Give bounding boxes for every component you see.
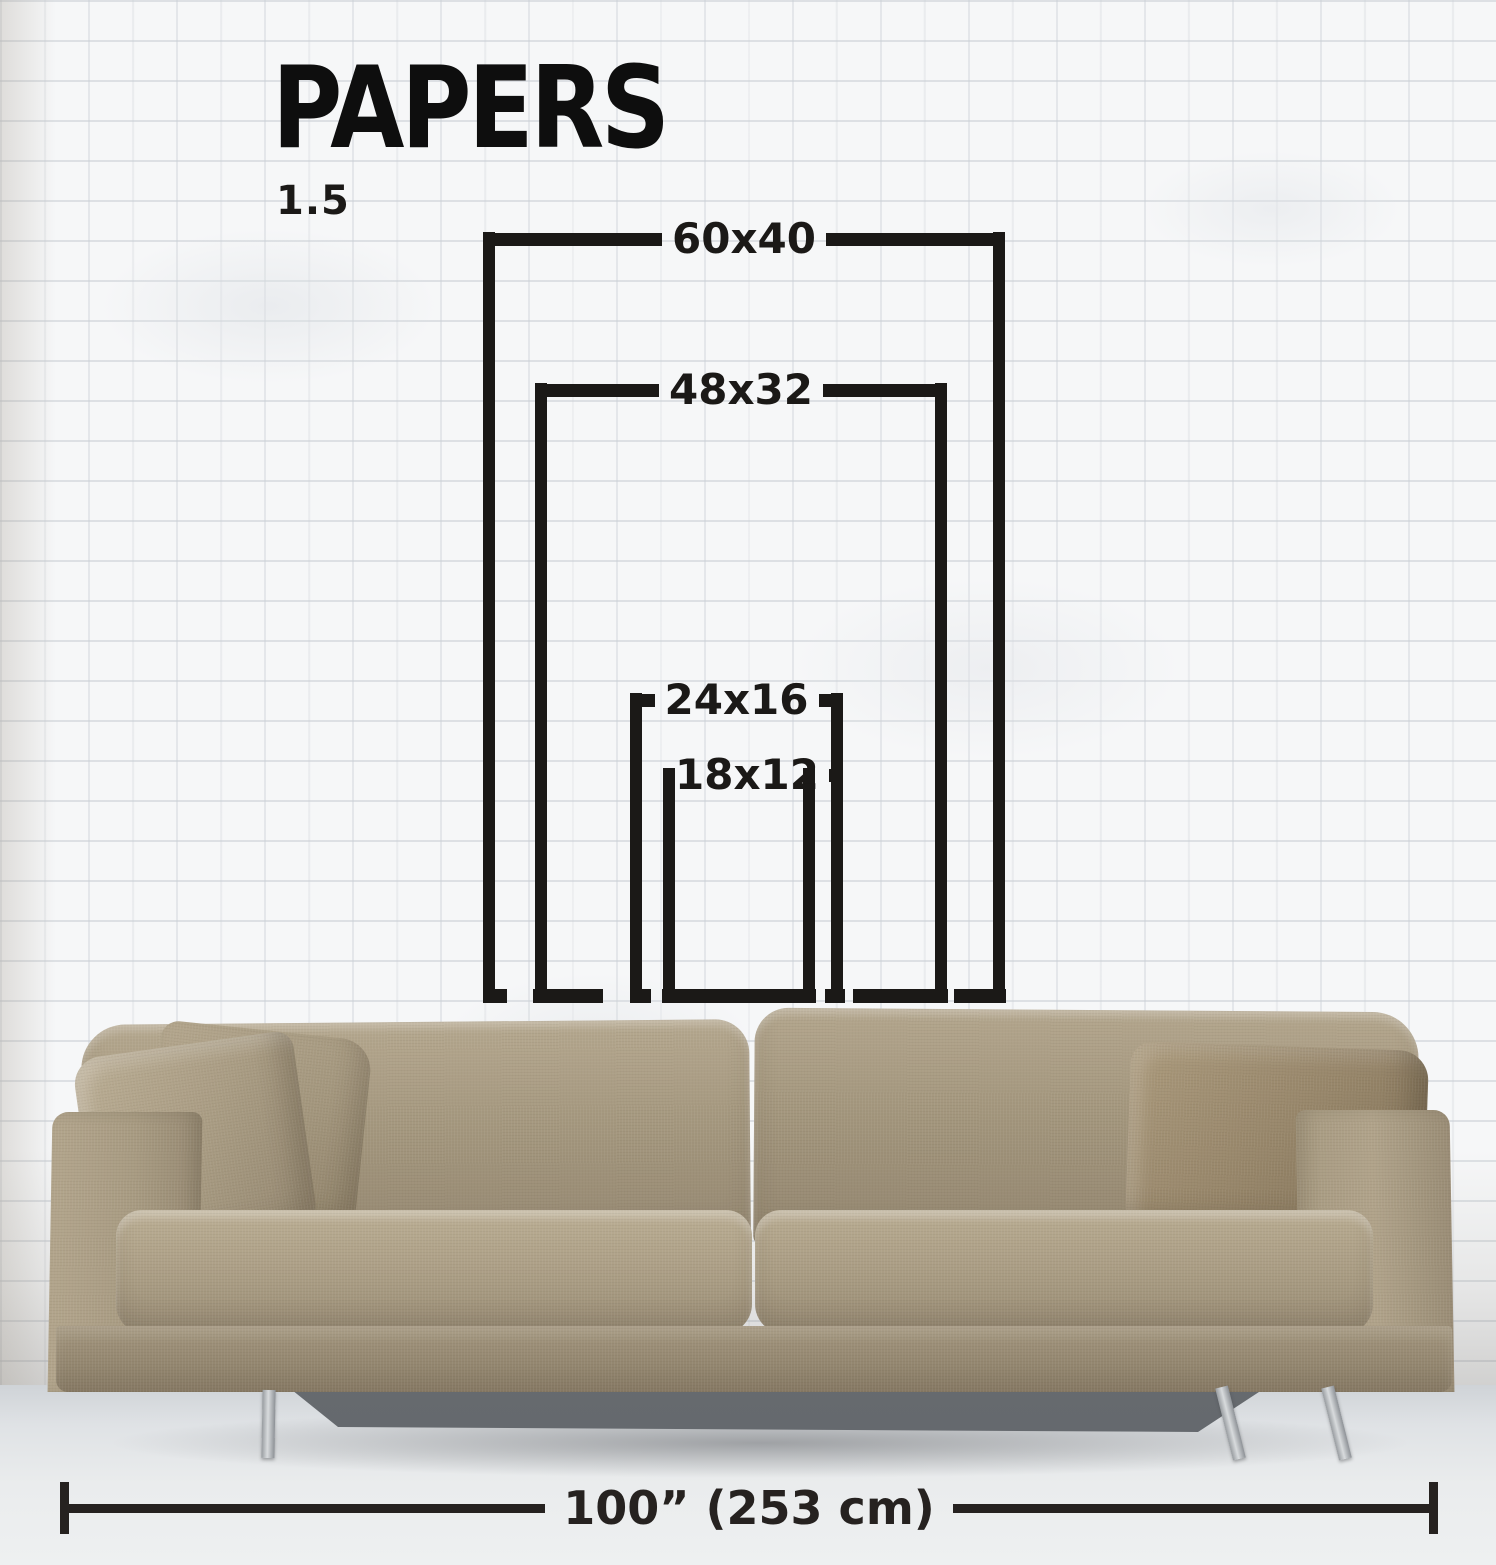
frame-top-line — [819, 694, 844, 707]
frame-top-line — [483, 233, 662, 246]
measurement-line — [953, 1504, 1429, 1513]
frame-baseline-segment — [483, 989, 507, 1003]
frame-top-line — [535, 384, 659, 397]
frame-top-line — [829, 769, 831, 782]
size-label-24x16: 24x16 — [655, 679, 819, 721]
measurement-line — [69, 1504, 545, 1513]
size-guide-scene: PAPERS 1.5 60x40 48x32 24x16 18x12 — [0, 0, 1496, 1565]
frame-baseline-segment — [954, 989, 1006, 1003]
measurement-tick-right — [1429, 1482, 1438, 1534]
frame-baseline-segment — [853, 989, 948, 1003]
wall-corner-shade — [0, 0, 56, 1392]
width-measurement: 100” (253 cm) — [60, 1482, 1438, 1534]
frame-baseline-segment — [662, 989, 816, 1003]
sofa-floor-shadow — [110, 1408, 1410, 1478]
frame-top-line — [826, 233, 1005, 246]
size-frame-48x32-top: 48x32 — [535, 367, 947, 413]
size-label-60x40: 60x40 — [662, 218, 826, 260]
size-frame-24x16-top: 24x16 — [630, 677, 843, 723]
sofa-seat-cushion-left — [116, 1210, 752, 1334]
size-frame-60x40-top: 60x40 — [483, 216, 1005, 262]
sofa-seat-cushion-right — [755, 1210, 1373, 1334]
frame-baseline-segment — [630, 989, 651, 1003]
measurement-label: 100” (253 cm) — [545, 1485, 953, 1531]
frame-baseline-segment — [533, 989, 603, 1003]
measurement-tick-left — [60, 1482, 69, 1534]
size-label-48x32: 48x32 — [659, 369, 823, 411]
page-title: PAPERS — [272, 44, 667, 174]
size-frame-18x12-top: 18x12 — [663, 752, 815, 798]
size-label-18x12: 18x12 — [665, 754, 829, 796]
frame-top-line — [823, 384, 947, 397]
frame-top-line — [630, 694, 655, 707]
sofa-base — [56, 1326, 1452, 1392]
size-frame-18x12: 18x12 — [663, 768, 815, 1003]
aspect-ratio-label: 1.5 — [276, 178, 350, 224]
frame-baseline-segment — [825, 989, 845, 1003]
sofa-leg-front-left — [261, 1390, 275, 1458]
